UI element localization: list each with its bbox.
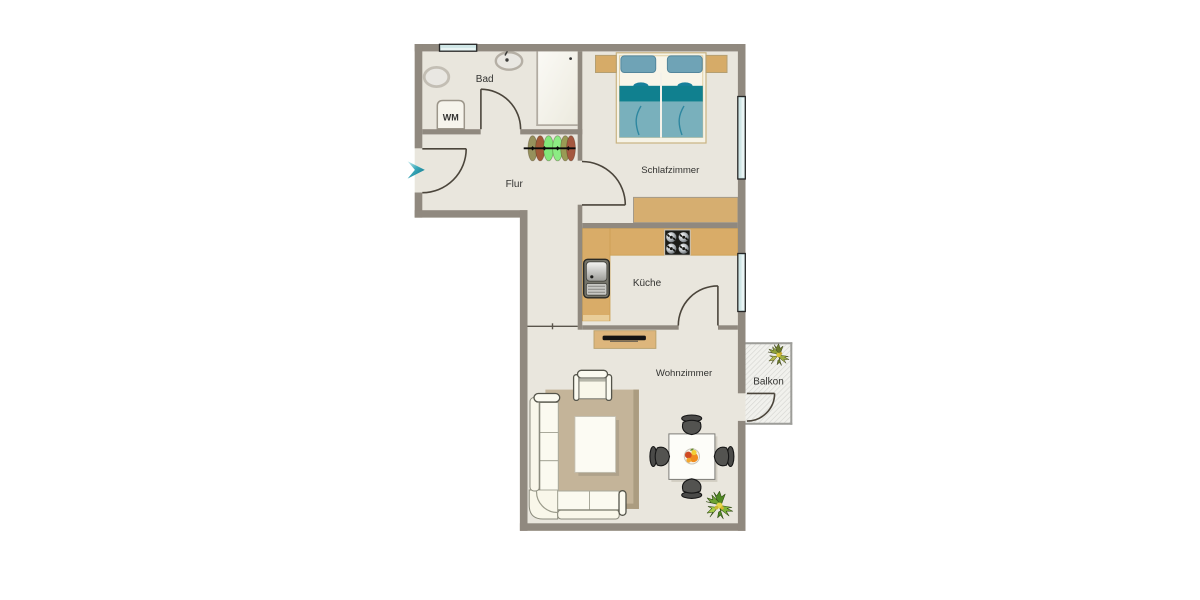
svg-text:Bad: Bad bbox=[476, 74, 494, 85]
svg-text:Flur: Flur bbox=[506, 179, 524, 190]
svg-text:Küche: Küche bbox=[633, 278, 662, 289]
svg-text:Balkon: Balkon bbox=[753, 377, 784, 388]
svg-text:Schlafzimmer: Schlafzimmer bbox=[641, 165, 700, 176]
svg-text:Wohnzimmer: Wohnzimmer bbox=[656, 368, 713, 379]
svg-text:WM: WM bbox=[443, 113, 459, 123]
